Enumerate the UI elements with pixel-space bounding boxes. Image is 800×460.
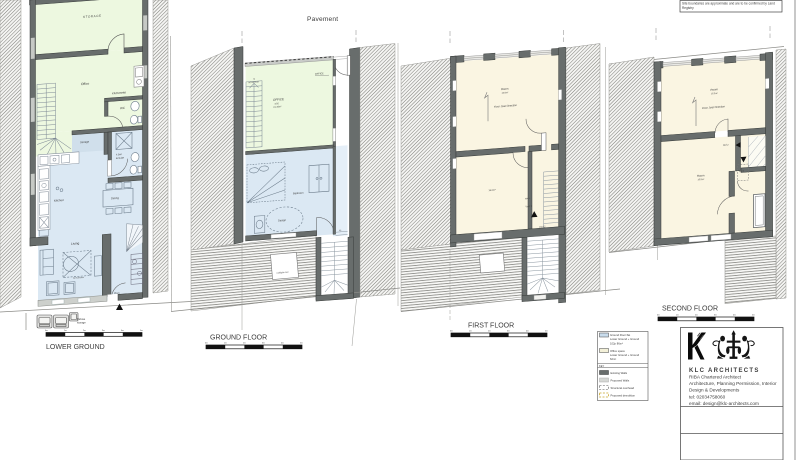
svg-text:RIBA Chartered Architect: RIBA Chartered Architect bbox=[689, 375, 742, 380]
svg-text:GROUND FLOOR: GROUND FLOOR bbox=[210, 335, 267, 342]
svg-text:5m: 5m bbox=[545, 331, 548, 333]
svg-text:Lower Ground + Ground: Lower Ground + Ground bbox=[610, 353, 640, 357]
svg-text:0m: 0m bbox=[657, 315, 660, 317]
svg-text:Room: Room bbox=[697, 173, 705, 178]
svg-text:1m: 1m bbox=[224, 343, 227, 345]
svg-text:4m: 4m bbox=[281, 343, 284, 345]
svg-text:3m: 3m bbox=[262, 343, 265, 345]
svg-text:Refuse: Refuse bbox=[77, 317, 86, 321]
svg-text:4m: 4m bbox=[121, 330, 124, 332]
svg-text:102p 86m²: 102p 86m² bbox=[610, 341, 623, 345]
svg-text:Design: Design bbox=[278, 218, 287, 223]
svg-text:15.0m²: 15.0m² bbox=[502, 91, 509, 95]
svg-text:KEY: KEY bbox=[599, 364, 604, 368]
svg-text:4m: 4m bbox=[526, 331, 529, 333]
svg-text:3m: 3m bbox=[102, 330, 105, 332]
svg-text:3m: 3m bbox=[714, 315, 717, 317]
svg-text:WALL: WALL bbox=[525, 197, 531, 200]
svg-text:5m: 5m bbox=[300, 343, 303, 345]
svg-text:4m: 4m bbox=[733, 315, 736, 317]
svg-text:Proposed Walls: Proposed Walls bbox=[611, 379, 630, 383]
svg-text:Bedroom: Bedroom bbox=[293, 191, 304, 196]
svg-text:FIRST FLOOR: FIRST FLOOR bbox=[468, 323, 514, 330]
svg-text:SECOND FLOOR: SECOND FLOOR bbox=[662, 306, 718, 313]
svg-text:0m: 0m bbox=[45, 330, 48, 332]
svg-text:Registry: Registry bbox=[682, 6, 694, 10]
svg-text:1m: 1m bbox=[676, 315, 679, 317]
svg-text:Structural overhead: Structural overhead bbox=[611, 386, 635, 390]
svg-text:Ground Floor flat: Ground Floor flat bbox=[610, 333, 630, 337]
svg-text:Site boundaries are approximat: Site boundaries are approximate and are … bbox=[682, 2, 775, 6]
svg-text:Office space: Office space bbox=[610, 349, 625, 353]
svg-text:LOWER GROUND: LOWER GROUND bbox=[46, 344, 105, 351]
svg-text:16.5m²: 16.5m² bbox=[711, 92, 718, 96]
svg-text:Pavement: Pavement bbox=[307, 16, 338, 23]
svg-text:1m: 1m bbox=[469, 331, 472, 333]
svg-text:0m: 0m bbox=[205, 343, 208, 345]
svg-text:Kitchen: Kitchen bbox=[54, 198, 64, 203]
svg-text:Office: Office bbox=[81, 82, 89, 87]
svg-text:2m: 2m bbox=[83, 330, 86, 332]
svg-text:5m: 5m bbox=[752, 315, 755, 317]
svg-text:Dining: Dining bbox=[111, 196, 119, 201]
svg-text:16.0m²: 16.0m² bbox=[698, 178, 705, 182]
svg-text:Room: Room bbox=[501, 87, 509, 92]
svg-text:OFFICE: OFFICE bbox=[273, 97, 284, 102]
svg-text:storage: storage bbox=[77, 321, 86, 325]
svg-text:2m: 2m bbox=[243, 343, 246, 345]
svg-text:Design & Developments: Design & Developments bbox=[689, 388, 740, 393]
svg-text:16.0m²: 16.0m² bbox=[489, 189, 496, 193]
svg-text:Architecture, Planning Permiss: Architecture, Planning Permission, Inter… bbox=[689, 381, 777, 386]
svg-text:WC: WC bbox=[120, 106, 126, 110]
svg-text:61.35m²: 61.35m² bbox=[274, 105, 282, 109]
svg-text:up: up bbox=[253, 78, 255, 80]
svg-text:2m: 2m bbox=[695, 315, 698, 317]
svg-text:3m: 3m bbox=[507, 331, 510, 333]
svg-text:Room: Room bbox=[711, 87, 719, 92]
svg-text:0m: 0m bbox=[450, 331, 453, 333]
svg-text:Lower Ground + Ground: Lower Ground + Ground bbox=[610, 337, 640, 341]
svg-text:Existing Walls: Existing Walls bbox=[611, 371, 628, 375]
svg-text:email: design@klc-architects.: email: design@klc-architects.com bbox=[689, 401, 759, 406]
svg-text:Storage: Storage bbox=[80, 140, 90, 145]
svg-text:2m: 2m bbox=[488, 331, 491, 333]
svg-text:62m²: 62m² bbox=[610, 357, 616, 361]
svg-text:Living: Living bbox=[71, 241, 80, 246]
svg-text:5m: 5m bbox=[140, 330, 143, 332]
svg-text:Proposed demolition: Proposed demolition bbox=[611, 394, 636, 398]
svg-text:1m: 1m bbox=[64, 330, 67, 332]
svg-text:tel: 02034758060: tel: 02034758060 bbox=[689, 394, 726, 399]
svg-text:KLC ARCHITECTS: KLC ARCHITECTS bbox=[689, 368, 760, 374]
